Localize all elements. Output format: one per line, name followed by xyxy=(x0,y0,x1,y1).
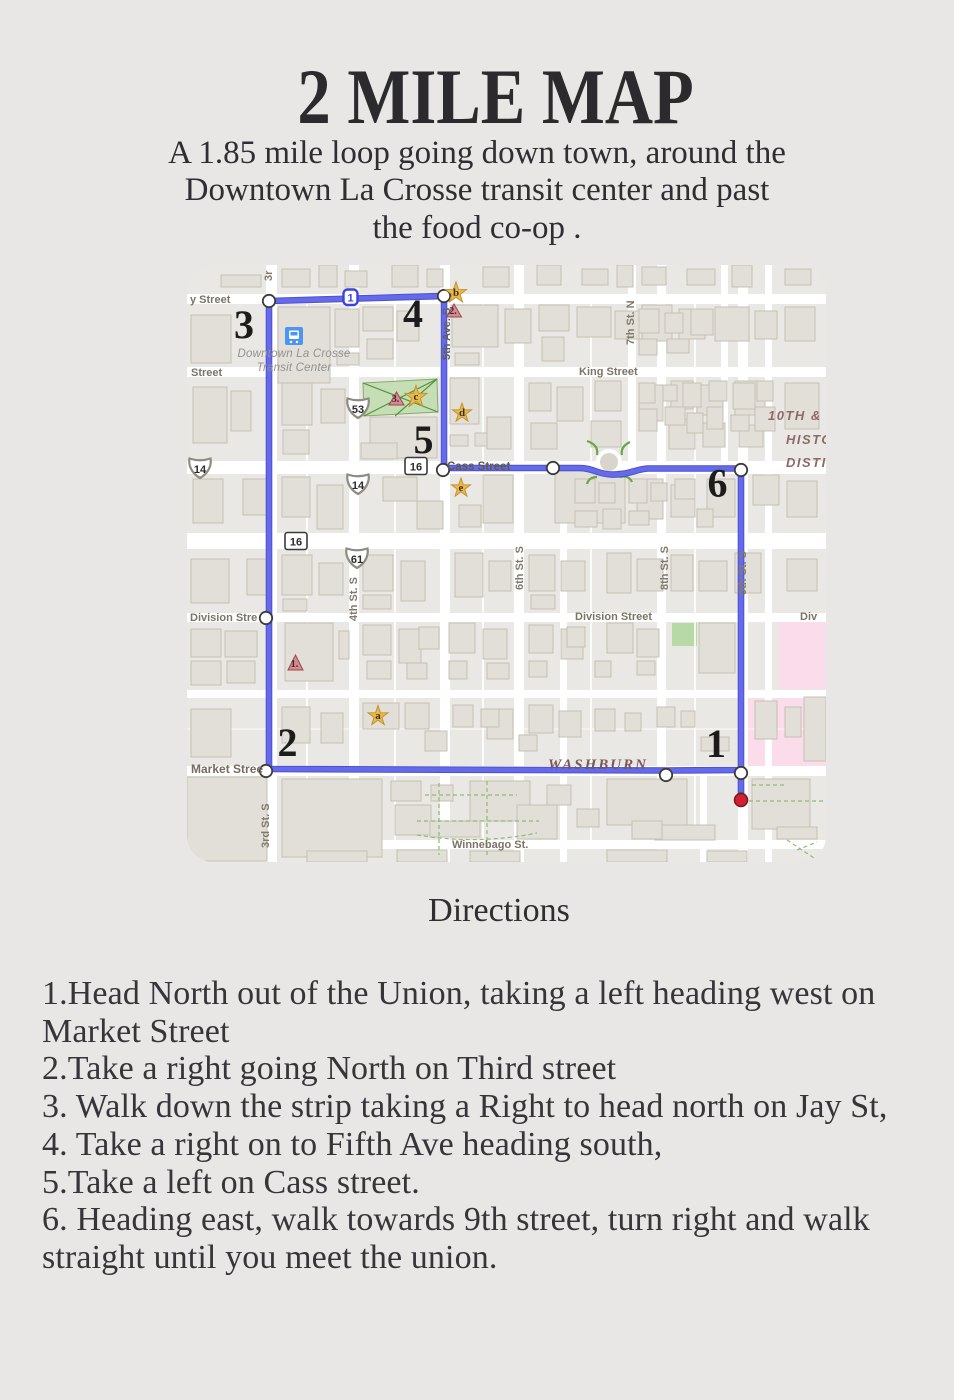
svg-text:c: c xyxy=(414,391,419,403)
svg-text:10TH &: 10TH & xyxy=(768,408,822,423)
svg-text:4th St. S: 4th St. S xyxy=(348,577,360,621)
svg-text:Division Street: Division Street xyxy=(575,611,652,623)
svg-text:Cass Street: Cass Street xyxy=(447,461,510,473)
svg-text:3: 3 xyxy=(234,302,254,347)
svg-text:2: 2 xyxy=(278,720,298,765)
svg-text:HISTO: HISTO xyxy=(786,432,826,447)
svg-text:53: 53 xyxy=(352,404,364,416)
svg-text:9th St. S: 9th St. S xyxy=(737,551,749,595)
svg-text:a: a xyxy=(375,710,381,722)
svg-text:6: 6 xyxy=(708,461,728,506)
svg-text:16: 16 xyxy=(290,537,302,549)
svg-text:7th St. N: 7th St. N xyxy=(625,300,637,345)
svg-text:3.: 3. xyxy=(392,394,400,405)
svg-text:Div: Div xyxy=(800,611,818,623)
svg-text:Division Stre: Division Stre xyxy=(190,612,257,624)
svg-text:1: 1 xyxy=(706,721,726,766)
svg-text:y Street: y Street xyxy=(190,294,231,306)
svg-text:5th Ave. S: 5th Ave. S xyxy=(441,308,453,360)
svg-text:d: d xyxy=(459,407,465,419)
svg-text:1.: 1. xyxy=(291,659,299,670)
svg-text:3rd St. S: 3rd St. S xyxy=(260,803,272,848)
svg-text:e: e xyxy=(459,482,464,494)
svg-text:16: 16 xyxy=(410,462,422,474)
svg-text:3r: 3r xyxy=(263,270,275,281)
svg-text:6th St. S: 6th St. S xyxy=(514,546,526,590)
svg-text:1: 1 xyxy=(347,293,353,305)
svg-text:Market Stree: Market Stree xyxy=(191,762,263,776)
svg-text:Winnebago St.: Winnebago St. xyxy=(452,839,528,851)
svg-text:Transit Center: Transit Center xyxy=(257,362,333,374)
svg-text:14: 14 xyxy=(194,464,207,476)
svg-text:WASHBURN: WASHBURN xyxy=(548,757,648,773)
svg-text:8th St. S: 8th St. S xyxy=(659,546,671,590)
svg-text:61: 61 xyxy=(351,554,363,566)
svg-text:b: b xyxy=(453,287,459,299)
svg-text:Downtown La Crosse: Downtown La Crosse xyxy=(238,348,351,360)
svg-text:14: 14 xyxy=(352,480,365,492)
svg-text:4: 4 xyxy=(403,291,423,336)
svg-text:King Street: King Street xyxy=(579,366,638,378)
svg-text:5: 5 xyxy=(414,417,434,462)
svg-text:DISTI: DISTI xyxy=(786,455,826,470)
svg-text:Street: Street xyxy=(191,367,223,379)
